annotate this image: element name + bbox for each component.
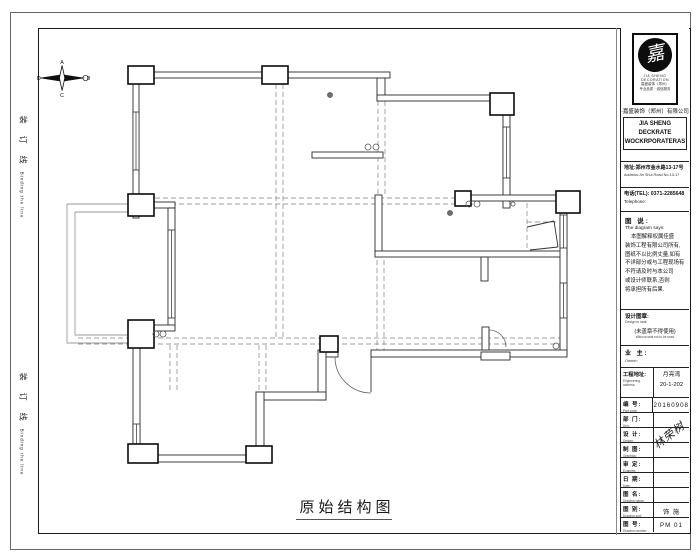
project-address-value: 月亮湾 20-1-202 — [654, 368, 689, 397]
row-label-cn: 图 名: — [623, 490, 651, 498]
note-line: 图纸不以比例丈量,如有 — [625, 251, 685, 260]
row-value — [654, 458, 689, 472]
compass-icon: A B C D — [36, 58, 90, 98]
note-line: 不详部分或与工程现场有 — [625, 259, 685, 268]
owner-section: 业 主: Owner: — [621, 346, 689, 368]
row-value: 20160908 — [653, 398, 689, 412]
project-value-line2: 20-1-202 — [654, 381, 689, 391]
row-label-cn: 制 图: — [623, 445, 651, 453]
row-label-cn: 图 号: — [623, 520, 651, 528]
title-block-row: 图 名:Drawing name: — [621, 488, 689, 503]
address-cn: 地址:郑州市金水路13-17号 — [624, 164, 686, 171]
seal-warning: (未盖章不得使用) — [625, 327, 685, 335]
compass-letter-right: B — [87, 76, 90, 82]
row-value: PM 01 — [654, 518, 689, 532]
binding-label-cn: 装 订 线 — [18, 116, 27, 169]
title-block-row: 图 别:Drawing sort:饰 施 — [621, 503, 689, 518]
title-block-row: 日 期:Date: — [621, 473, 689, 488]
notes-section: 图 说: The diagram says: 本图解释权属佳盛装饰工程有限公司所… — [621, 212, 689, 310]
phone-label-en: Telephone: — [624, 199, 686, 204]
row-label: 审 定:Examine: — [621, 458, 654, 472]
row-label-en: Part code: — [623, 409, 650, 413]
title-block-logo-section: 嘉 JIA SHENG DECORATION 嘉盛装饰（郑州） 专业品质 · 诚… — [621, 28, 689, 162]
notes-subtitle: The diagram says: — [625, 226, 685, 231]
row-label-en: Drawing sort: — [623, 514, 651, 518]
phone-section: 电话(TEL): 0371-2285648 Telephone: — [621, 188, 689, 212]
row-label: 部 门:Dep: — [621, 413, 654, 427]
owner-label-en: Owner: — [625, 358, 685, 363]
row-label-cn: 审 定: — [623, 460, 651, 468]
company-logo-icon: 嘉 — [635, 35, 675, 75]
binding-label-en: Binding the line — [19, 172, 24, 219]
row-label-en: Date: — [623, 484, 651, 488]
company-name-en-line2: WOCKRPORATERAS — [624, 138, 686, 147]
logo-caption: JIA SHENG DECORATION — [634, 74, 676, 82]
seal-label-en: Design in seal: — [625, 320, 685, 324]
binding-line-text-top: 装 订 线Binding the line — [11, 115, 37, 219]
plan-title-underline — [296, 519, 392, 520]
row-value: 饰 施 — [654, 503, 689, 517]
row-label-en: Dep: — [623, 424, 651, 428]
plan-title: 原始结构图 — [272, 496, 422, 517]
title-block-row: 审 定:Examine: — [621, 458, 689, 473]
project-value-line1: 月亮湾 — [654, 371, 689, 381]
row-label: 图 名:Drawing name: — [621, 488, 654, 502]
company-name-en: JIA SHENG DECKRATE WOCKRPORATERAS — [623, 117, 687, 150]
row-label-en: Examine: — [623, 469, 651, 473]
title-block-outline — [616, 28, 617, 535]
company-logo-frame: 嘉 JIA SHENG DECORATION 嘉盛装饰（郑州） 专业品质 · 诚… — [632, 33, 678, 105]
title-block-row: 编 号:Part code:20160908 — [621, 398, 689, 413]
seal-warning-en: Without seal not to be used — [625, 335, 685, 339]
compass-letter-left: D — [37, 76, 41, 82]
row-value — [654, 488, 689, 502]
address-section: 地址:郑州市金水路13-17号 Address:Jin Shui Road No… — [621, 162, 689, 188]
note-line: 或设计师联系,否则 — [625, 277, 685, 286]
note-line: 将承担所有后果. — [625, 286, 685, 295]
project-address-section: 工程地址: Engineering address: 月亮湾 20-1-202 — [621, 368, 689, 398]
row-label: 编 号:Part code: — [621, 398, 653, 412]
binding-label-cn: 装 订 线 — [18, 373, 27, 426]
company-name-cn: ·嘉盛装饰（郑州）有限公司 — [621, 107, 689, 115]
binding-label-en: Binding the line — [19, 429, 24, 476]
phone-number: 电话(TEL): 0371-2285648 — [624, 190, 686, 197]
row-label-cn: 编 号: — [623, 400, 650, 408]
row-label: 制 图:Graphics: — [621, 443, 654, 457]
row-label-en: Drawing number: — [623, 529, 651, 533]
row-label: 日 期:Date: — [621, 473, 654, 487]
project-label-cn: 工程地址: — [623, 370, 651, 378]
note-line: 装饰工程有限公司所有, — [625, 242, 685, 251]
row-label-en: Drawing name: — [623, 499, 651, 503]
compass-letter-bottom: C — [60, 93, 64, 98]
notes-title: 图 说: — [625, 215, 685, 225]
notes-lines: 本图解释权属佳盛装饰工程有限公司所有,图纸不以比例丈量,如有不详部分或与工程现场… — [625, 233, 685, 294]
owner-label: 业 主: — [625, 348, 685, 357]
note-line: 本图解释权属佳盛 — [625, 233, 685, 242]
row-label-en: Graphics: — [623, 454, 651, 458]
company-name-en-line1: JIA SHENG DECKRATE — [624, 120, 686, 138]
compass-letter-top: A — [60, 60, 64, 66]
row-label-en: Design: — [623, 439, 651, 443]
row-label-cn: 设 计: — [623, 430, 651, 438]
design-seal-section: 设计图章: Design in seal: (未盖章不得使用) Without … — [621, 310, 689, 346]
address-en: Address:Jin Shui Road No.13-17 — [624, 173, 686, 177]
seal-label: 设计图章: — [625, 312, 685, 320]
row-value — [654, 473, 689, 487]
sheet-inner-frame — [38, 28, 691, 534]
row-label-cn: 图 别: — [623, 505, 651, 513]
title-block: 嘉 JIA SHENG DECORATION 嘉盛装饰（郑州） 专业品质 · 诚… — [620, 28, 689, 532]
project-address-label: 工程地址: Engineering address: — [621, 368, 654, 397]
binding-line-text-bottom: 装 订 线Binding the line — [11, 372, 37, 476]
logo-caption: 专业品质 · 诚信服务 — [634, 87, 676, 92]
note-line: 不符请及时与本公司 — [625, 268, 685, 277]
title-block-row: 图 号:Drawing number:PM 01 — [621, 518, 689, 532]
row-label-cn: 日 期: — [623, 475, 651, 483]
drawing-sheet: 装 订 线Binding the line 装 订 线Binding the l… — [0, 0, 700, 560]
row-label: 图 号:Drawing number: — [621, 518, 654, 532]
row-label: 图 别:Drawing sort: — [621, 503, 654, 517]
row-label-cn: 部 门: — [623, 415, 651, 423]
project-label-en: Engineering address: — [623, 379, 651, 387]
